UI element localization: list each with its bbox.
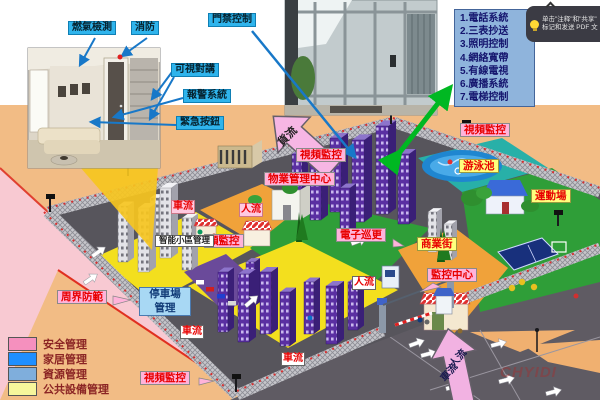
tower-gray — [160, 188, 171, 258]
lightbulb-icon — [530, 20, 539, 29]
tower-purple — [249, 269, 256, 342]
label-commercial-street: 商業街 — [417, 237, 457, 251]
callout-alarm-system: 報警系統 — [183, 89, 231, 103]
label-video-surveillance-right: 視頻監控 — [460, 123, 510, 137]
legend-swatch-public — [8, 382, 37, 396]
label-video-surveillance-bottom: 視頻監控 — [140, 371, 190, 385]
legend-row-public: 公共設備管理 — [8, 381, 109, 396]
label-people-flow-left: 人流 — [239, 203, 263, 217]
legend-row-security: 安全管理 — [8, 336, 109, 351]
tower-purple — [376, 126, 388, 214]
label-smart-community-management: 智能小區管理 — [155, 235, 214, 247]
service-item: 1.電話系統 — [460, 12, 534, 25]
tower-purple — [304, 282, 314, 334]
tower-purple — [271, 267, 278, 334]
label-electronic-patrol: 電子巡更 — [336, 228, 386, 242]
service-item: 7.電梯控制 — [460, 91, 534, 104]
label-monitoring-center: 監控中心 — [427, 268, 477, 282]
tower-purple — [326, 286, 337, 344]
tower-purple — [218, 272, 228, 332]
fire-sensor-dot — [118, 55, 123, 60]
tooltip-collapse-caret-icon[interactable] — [546, 1, 554, 9]
pdf-annotation-tooltip[interactable]: 单击"注释"和"共享" 标记和发送 PDF 文 — [526, 6, 600, 42]
tower-purple — [409, 149, 416, 224]
tower-purple — [388, 120, 396, 214]
tower-purple — [290, 288, 296, 346]
tower-purple — [238, 274, 249, 342]
tooltip-line2: 标记和发送 PDF 文 — [542, 24, 598, 33]
label-car-flow-parking: 車流 — [180, 325, 204, 339]
label-video-surveillance-center: 視頻監控 — [296, 148, 346, 162]
tower-purple — [337, 281, 344, 344]
service-item: 5.有線電視 — [460, 65, 534, 78]
label-swimming-pool: 游泳池 — [459, 159, 499, 173]
service-item: 3.照明控制 — [460, 38, 534, 51]
label-parking-management: 停車場 管理 — [139, 287, 191, 316]
callout-video-intercom: 可視對講 — [171, 63, 219, 77]
service-item: 6.廣播系統 — [460, 78, 534, 91]
tower-purple — [260, 272, 271, 334]
label-car-flow-left: 車流 — [171, 200, 195, 214]
tower-purple — [280, 292, 290, 346]
callout-gas-detection: 燃氣檢測 — [68, 21, 116, 35]
callout-access-control: 門禁控制 — [208, 13, 256, 27]
tower-purple — [398, 154, 409, 224]
legend-row-resource: 資源管理 — [8, 366, 109, 381]
legend-swatch-home — [8, 352, 37, 366]
tower-purple — [314, 278, 320, 334]
label-perimeter-defense: 周界防範 — [57, 290, 107, 304]
legend-swatch-security — [8, 337, 37, 351]
services-list: 1.電話系統 2.三表抄送 3.照明控制 4.網絡寬帶 5.有線電視 6.廣播系… — [454, 9, 535, 107]
watermark: CHYIDI — [500, 364, 557, 381]
legend-swatch-resource — [8, 367, 37, 381]
tooltip-line1: 单击"注释"和"共享" — [542, 16, 598, 25]
legend: 安全管理 家居管理 資源管理 公共設備管理 — [8, 336, 109, 396]
legend-row-home: 家居管理 — [8, 351, 109, 366]
label-sports-field: 運動場 — [531, 189, 571, 203]
tower-purple — [364, 134, 372, 222]
service-item: 2.三表抄送 — [460, 25, 534, 38]
smart-community-diagram: 燃氣檢測 消防 門禁控制 可視對講 報警系統 緊急按鈕 1.電話系統 2.三表抄… — [0, 0, 600, 400]
callout-emergency-button: 緊急按鈕 — [176, 116, 224, 130]
callout-fire: 消防 — [131, 21, 159, 35]
label-people-flow-center: 人流 — [352, 276, 376, 290]
service-item: 4.網絡寬帶 — [460, 52, 534, 65]
home-interior-photo — [28, 48, 160, 168]
tower-purple — [228, 268, 234, 332]
label-car-flow-center: 車流 — [281, 352, 305, 366]
label-property-management-center: 物業管理中心 — [264, 172, 335, 186]
